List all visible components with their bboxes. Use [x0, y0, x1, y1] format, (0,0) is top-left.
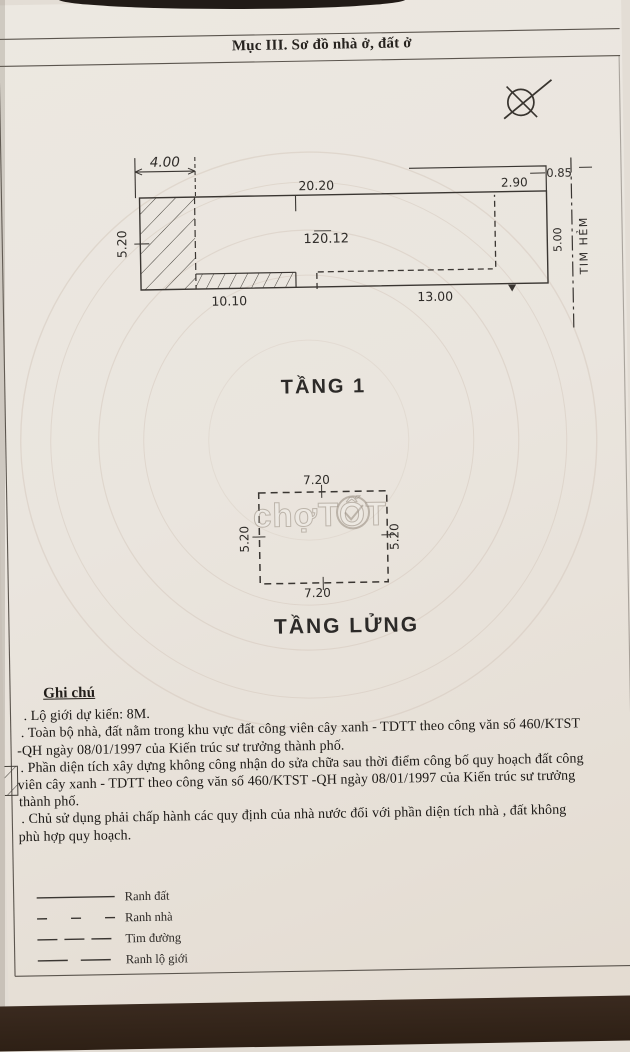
- dim-mezz-top: 7.20: [303, 473, 330, 487]
- dim-floor1-left: 5.20: [114, 230, 129, 258]
- notes-section: Ghi chú . Lộ giới dự kiến: 8M. . Toàn bộ…: [3, 676, 624, 847]
- alley-centerline-label: TIM HẺM: [576, 216, 591, 275]
- legend-label-tim-duong: Tim đường: [125, 930, 182, 945]
- dim-mezz-right: 5.20: [387, 523, 401, 550]
- dim-mezz-left: 5.20: [237, 526, 251, 553]
- photographed-document: { "page_title": "Mục III. Sơ đồ nhà ở, đ…: [0, 0, 630, 1024]
- alley-centerline: [571, 157, 574, 327]
- document-page: 4.00 20.20 2.90 0.85 5.20 5.00 120.12 10…: [0, 0, 630, 1029]
- dim-floor1-top-right: 2.90: [501, 175, 528, 189]
- dim-floor1-top-left: 4.00: [150, 154, 180, 171]
- legend-label-ranh-dat: Ranh đất: [125, 889, 171, 904]
- legend-label-ranh-lo-gioi: Ranh lộ giới: [126, 951, 189, 966]
- legend-line-long-dash: [38, 960, 116, 961]
- floor1-area-value: 120.12: [303, 231, 349, 247]
- north-symbol-icon: [504, 80, 553, 119]
- legend-lines: [37, 897, 116, 961]
- legend-line-solid: [37, 897, 115, 898]
- dim-floor1-bottom-right: 13.00: [417, 289, 453, 305]
- site-watermark: chợTỐT: [253, 495, 388, 535]
- mezzanine-name: TẦNG LỬNG: [274, 613, 419, 640]
- paper-left-edge-shadow: [0, 0, 5, 1024]
- floor1-name: TẦNG 1: [281, 375, 367, 399]
- legend-line-dash: [37, 939, 115, 940]
- legend-labels: Ranh đất Ranh nhà Tim đường Ranh lộ giới: [125, 888, 189, 966]
- dim-floor1-bottom-left: 10.10: [211, 293, 247, 309]
- dim-mezz-bottom: 7.20: [304, 586, 331, 600]
- legend-line-sparse-dash: [37, 918, 115, 919]
- floor1-hatched-bottom-strip: [196, 272, 296, 289]
- dim-floor1-offset: 0.85: [546, 165, 572, 179]
- dim-floor1-top: 20.20: [298, 178, 334, 194]
- legend-label-ranh-nha: Ranh nhà: [125, 910, 173, 925]
- dim-floor1-right: 5.00: [551, 227, 564, 252]
